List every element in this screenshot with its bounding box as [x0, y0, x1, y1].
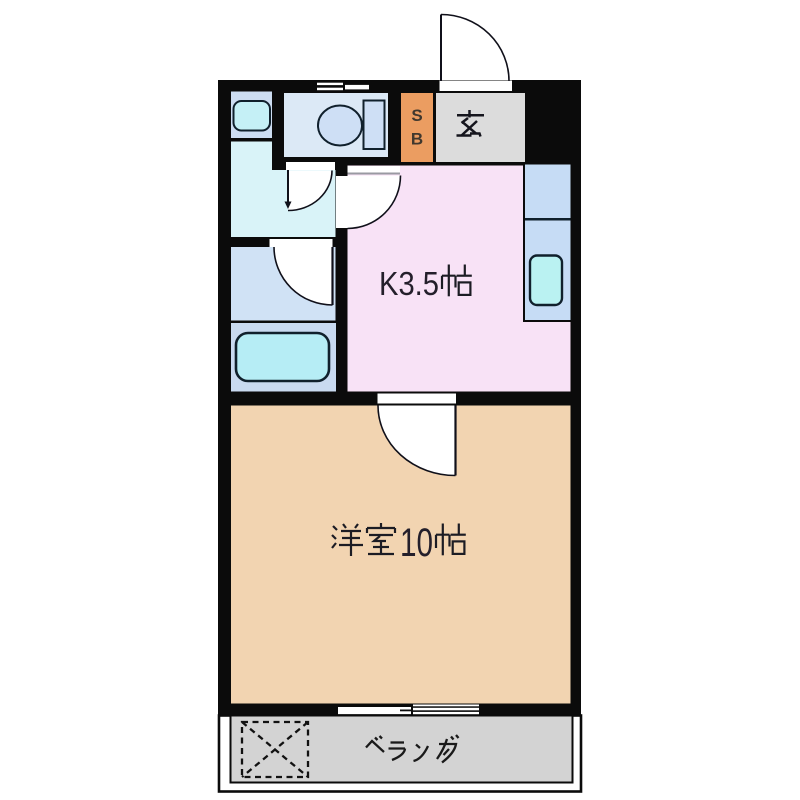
svg-text:10: 10 [400, 521, 433, 565]
svg-text:K3.5: K3.5 [379, 265, 439, 302]
svg-text:S: S [411, 106, 422, 125]
svg-text:B: B [411, 130, 423, 149]
